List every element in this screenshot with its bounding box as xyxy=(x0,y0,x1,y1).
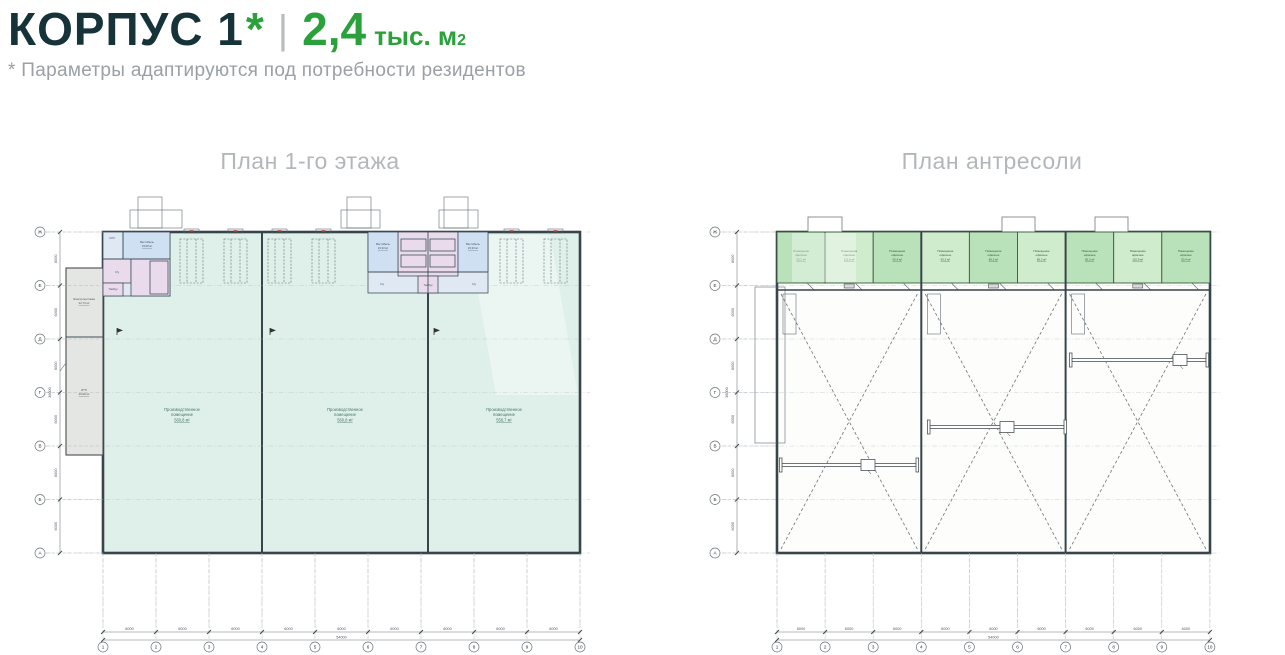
svg-text:5: 5 xyxy=(968,645,971,650)
svg-text:6000: 6000 xyxy=(337,627,345,631)
svg-text:6000: 6000 xyxy=(496,627,504,631)
walkway-tag xyxy=(1133,284,1143,288)
grid-bubble: 2 xyxy=(151,642,161,652)
svg-text:6000: 6000 xyxy=(54,415,58,423)
page: КОРПУС 1* | 2,4 тыс. м2 * Параметры адап… xyxy=(0,0,1285,655)
grid-bubble: Г xyxy=(710,388,720,398)
svg-text:6000: 6000 xyxy=(731,362,735,370)
svg-text:3: 3 xyxy=(208,645,211,650)
svg-text:6000: 6000 xyxy=(941,627,949,631)
roof-canopy xyxy=(1002,217,1035,232)
svg-text:6000: 6000 xyxy=(797,627,805,631)
dimension-chain-bottom: 6000600060006000600060006000600060005400… xyxy=(98,627,585,652)
area-value: 2,4 xyxy=(302,2,366,56)
svg-text:С/у: С/у xyxy=(115,270,120,274)
grid-bubble: 7 xyxy=(1061,642,1071,652)
floor1-plan-drawing: Электрощитовая22,73 м²ИТП49,98 м²Вестибю… xyxy=(30,195,645,655)
svg-text:6000: 6000 xyxy=(731,415,735,423)
stair-tower xyxy=(439,197,478,228)
grid-bubble: А xyxy=(35,548,45,558)
utility-block-left: Вестибюль33,08 м²С/уТамбурКУИ xyxy=(103,232,170,296)
grid-bubble: Е xyxy=(710,281,720,291)
svg-text:6000: 6000 xyxy=(1085,627,1093,631)
svg-text:36000: 36000 xyxy=(725,387,729,398)
svg-text:2: 2 xyxy=(155,645,158,650)
svg-text:6000: 6000 xyxy=(125,627,133,631)
mezzanine-plan-drawing: Помещениеофисное50,2 м²Помещениеофисное1… xyxy=(700,195,1285,655)
svg-text:Е: Е xyxy=(38,283,41,288)
header: КОРПУС 1* | 2,4 тыс. м2 * Параметры адап… xyxy=(8,2,526,82)
grid-bubble: Г xyxy=(35,388,45,398)
annex-technical-rooms: Электрощитовая22,73 м²ИТП49,98 м² xyxy=(60,268,103,455)
stair-tower xyxy=(341,197,380,228)
title-divider: | xyxy=(278,8,288,53)
grid-bubble: Е xyxy=(35,281,45,291)
grid-bubble: 8 xyxy=(469,642,479,652)
title-asterisk: * xyxy=(246,2,264,56)
grid-bubble: 9 xyxy=(1157,642,1167,652)
building-title: КОРПУС 1 xyxy=(8,2,244,56)
svg-text:6000: 6000 xyxy=(390,627,398,631)
svg-text:Тамбур: Тамбур xyxy=(423,283,433,287)
grid-bubble: 10 xyxy=(1205,642,1215,652)
svg-text:6000: 6000 xyxy=(1134,627,1142,631)
grid-bubble: 5 xyxy=(310,642,320,652)
svg-text:6000: 6000 xyxy=(443,627,451,631)
plan-title-mezzanine: План антресоли xyxy=(712,148,1272,175)
grid-bubble: 1 xyxy=(772,642,782,652)
walkway-tag xyxy=(988,284,998,288)
walkway-tag xyxy=(844,284,854,288)
roof-canopy xyxy=(1095,217,1128,232)
grid-bubble: 1 xyxy=(98,642,108,652)
grid-bubble: 4 xyxy=(257,642,267,652)
svg-text:6000: 6000 xyxy=(1037,627,1045,631)
svg-text:54000: 54000 xyxy=(336,636,347,640)
svg-text:3: 3 xyxy=(872,645,875,650)
grid-bubble: Б xyxy=(710,495,720,505)
grid-bubble: В xyxy=(35,441,45,451)
grid-bubble: 6 xyxy=(363,642,373,652)
grid-bubble: 10 xyxy=(575,642,585,652)
svg-text:6000: 6000 xyxy=(731,469,735,477)
watermark xyxy=(792,233,856,282)
grid-bubble: 3 xyxy=(868,642,878,652)
svg-text:1: 1 xyxy=(776,645,779,650)
dimension-chain-bottom: 6000600060006000600060006000600060005400… xyxy=(772,627,1215,652)
svg-text:8: 8 xyxy=(1112,645,1115,650)
svg-text:Е: Е xyxy=(713,283,716,288)
svg-text:В: В xyxy=(713,444,716,449)
grid-bubble: 3 xyxy=(204,642,214,652)
svg-text:Б: Б xyxy=(713,497,716,502)
svg-text:6000: 6000 xyxy=(549,627,557,631)
svg-text:10: 10 xyxy=(1207,645,1213,650)
svg-text:6000: 6000 xyxy=(731,522,735,530)
svg-text:5: 5 xyxy=(314,645,317,650)
svg-text:9: 9 xyxy=(1161,645,1164,650)
grid-bubble: 6 xyxy=(1013,642,1023,652)
svg-text:7: 7 xyxy=(1064,645,1067,650)
area-unit: тыс. м xyxy=(374,21,457,52)
svg-text:В: В xyxy=(38,444,41,449)
svg-text:С/у: С/у xyxy=(380,282,385,286)
svg-text:6000: 6000 xyxy=(54,469,58,477)
grid-bubble: 7 xyxy=(416,642,426,652)
svg-text:6000: 6000 xyxy=(989,627,997,631)
grid-bubble: 5 xyxy=(964,642,974,652)
svg-text:6000: 6000 xyxy=(731,255,735,263)
svg-text:6000: 6000 xyxy=(178,627,186,631)
svg-text:6000: 6000 xyxy=(284,627,292,631)
utility-block-center: Вестибюль23,33 м²Вестибюль23,33 м²С/уС/у… xyxy=(368,232,488,293)
svg-text:6: 6 xyxy=(1016,645,1019,650)
grid-bubble: А xyxy=(710,548,720,558)
title-row: КОРПУС 1* | 2,4 тыс. м2 xyxy=(8,2,526,56)
svg-text:6000: 6000 xyxy=(54,255,58,263)
grid-bubble: Б xyxy=(35,495,45,505)
svg-text:6000: 6000 xyxy=(845,627,853,631)
svg-text:1: 1 xyxy=(102,645,105,650)
svg-text:4: 4 xyxy=(920,645,923,650)
svg-text:2: 2 xyxy=(824,645,827,650)
area-superscript: 2 xyxy=(457,32,466,50)
grid-bubble: 2 xyxy=(820,642,830,652)
grid-bubble: Ж xyxy=(35,227,45,237)
svg-text:54000: 54000 xyxy=(988,636,999,640)
svg-text:6: 6 xyxy=(367,645,370,650)
grid-bubble: 4 xyxy=(916,642,926,652)
svg-text:6000: 6000 xyxy=(54,522,58,530)
svg-text:Б: Б xyxy=(38,497,41,502)
svg-text:36000: 36000 xyxy=(48,387,52,398)
grid-bubble: Д xyxy=(35,334,45,344)
svg-text:6000: 6000 xyxy=(1182,627,1190,631)
svg-text:7: 7 xyxy=(420,645,423,650)
grid-bubble: Д xyxy=(710,334,720,344)
footnote: * Параметры адаптируются под потребности… xyxy=(8,60,526,82)
svg-text:6000: 6000 xyxy=(231,627,239,631)
svg-text:6000: 6000 xyxy=(54,362,58,370)
svg-text:10: 10 xyxy=(577,645,583,650)
plan-title-floor1: План 1-го этажа xyxy=(30,148,590,175)
svg-text:9: 9 xyxy=(526,645,529,650)
svg-text:6000: 6000 xyxy=(731,308,735,316)
svg-text:6000: 6000 xyxy=(54,308,58,316)
grid-bubble: Ж xyxy=(710,227,720,237)
svg-text:Тамбур: Тамбур xyxy=(108,287,118,291)
grid-bubble: В xyxy=(710,441,720,451)
grid-bubble: 9 xyxy=(522,642,532,652)
svg-text:4: 4 xyxy=(261,645,264,650)
grid-bubble: 8 xyxy=(1109,642,1119,652)
svg-text:8: 8 xyxy=(473,645,476,650)
stair-tower xyxy=(130,197,182,228)
svg-text:КУИ: КУИ xyxy=(109,236,114,240)
roof-canopy xyxy=(808,217,842,232)
svg-text:6000: 6000 xyxy=(893,627,901,631)
svg-text:С/у: С/у xyxy=(472,282,477,286)
